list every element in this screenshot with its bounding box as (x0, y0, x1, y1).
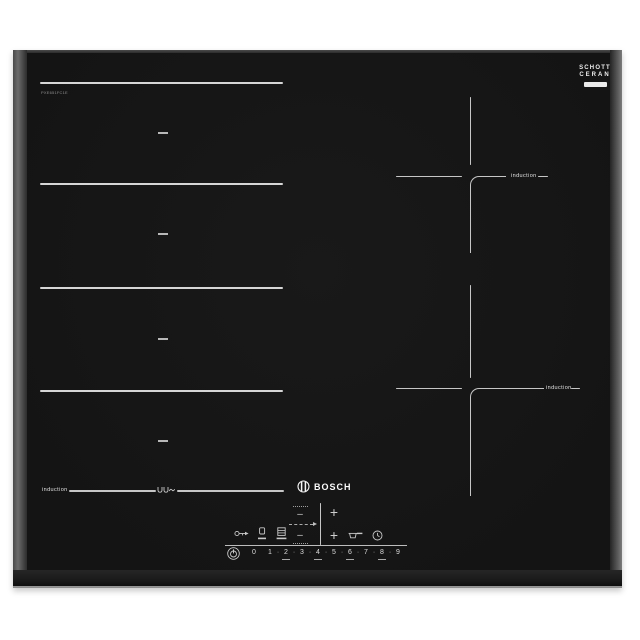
move-pan-dashed-line (289, 524, 313, 525)
level-6[interactable]: 6 (345, 548, 355, 557)
hob-frame-bottom (13, 570, 622, 588)
hob-frame-right (610, 50, 622, 588)
power-icon[interactable] (227, 547, 240, 560)
flex-zone-line-4 (40, 390, 283, 392)
level-3[interactable]: 3 (297, 548, 307, 557)
flex-zone-line-2 (40, 183, 283, 185)
level-8[interactable]: 8 (377, 548, 387, 557)
flex-zone-line-3 (40, 287, 283, 289)
zone-br-induction-label: induction (546, 385, 572, 391)
bosch-logo: BOSCH (297, 480, 352, 493)
flex-zone-center-mark-1 (158, 132, 168, 134)
flex-zone-line-1 (40, 82, 283, 84)
bosch-emblem-icon (297, 480, 310, 493)
slider-line (225, 545, 407, 546)
flex-pans-icon (157, 485, 175, 495)
flex-zone-center-mark-4 (158, 440, 168, 442)
key-lock-icon[interactable] (234, 529, 250, 538)
flex-zone-center-mark-3 (158, 338, 168, 340)
flex-bottom-line-right (177, 490, 284, 492)
minus-key-bottom[interactable]: – (293, 531, 307, 541)
glass-surface: PXE651FC1E SCHOTT CERAN induction (27, 53, 610, 570)
zone-tr-left-arm (396, 176, 462, 178)
pan-icon[interactable] (348, 532, 363, 540)
induction-hob: PXE651FC1E SCHOTT CERAN induction (13, 50, 622, 588)
zone-tr-top-arm (470, 97, 472, 165)
plus-key-top[interactable]: + (327, 506, 341, 519)
plus-key-bottom[interactable]: + (327, 529, 341, 542)
level-9[interactable]: 9 (393, 548, 403, 557)
zone-select-icon[interactable] (276, 527, 287, 540)
level-2[interactable]: 2 (281, 548, 291, 557)
schott-line2: CERAN (573, 72, 617, 79)
timer-clock-icon[interactable] (372, 530, 383, 541)
zone-br-label-dash (571, 388, 580, 390)
schott-line1: SCHOTT (573, 65, 617, 72)
bosch-wordmark: BOSCH (314, 482, 352, 492)
power-level-slider[interactable]: 0 1 · 2 · 3 · 4 · 5 · 6 · 7 · 8 · 9 (249, 548, 403, 557)
minus-key-top[interactable]: – (293, 510, 307, 520)
display-dotted-top (293, 506, 308, 507)
display-divider (320, 503, 321, 545)
flex-zone-center-mark-2 (158, 233, 168, 235)
boost-icon[interactable] (257, 527, 267, 540)
move-pan-arrow-icon (313, 522, 317, 526)
level-5[interactable]: 5 (329, 548, 339, 557)
schott-badge-bar (584, 82, 607, 87)
model-label: PXE651FC1E (41, 90, 68, 95)
schott-ceran-badge: SCHOTT CERAN (573, 65, 617, 87)
zone-br-top-arm (470, 285, 472, 378)
level-1[interactable]: 1 (265, 548, 275, 557)
flex-zone-induction-label: induction (42, 487, 68, 493)
level-7[interactable]: 7 (361, 548, 371, 557)
level-4[interactable]: 4 (313, 548, 323, 557)
zone-br-corner (470, 388, 544, 496)
zone-tr-label-dash (538, 176, 548, 178)
display-dotted-bottom (293, 543, 308, 544)
zone-tr-induction-label: induction (511, 173, 537, 179)
product-photo-canvas: { "product": { "brand": "BOSCH", "model"… (0, 0, 640, 640)
zone-tr-corner (470, 176, 506, 253)
zone-br-left-arm (396, 388, 462, 390)
level-0[interactable]: 0 (249, 548, 259, 557)
flex-bottom-line-left (69, 490, 156, 492)
hob-frame-left (13, 50, 27, 588)
